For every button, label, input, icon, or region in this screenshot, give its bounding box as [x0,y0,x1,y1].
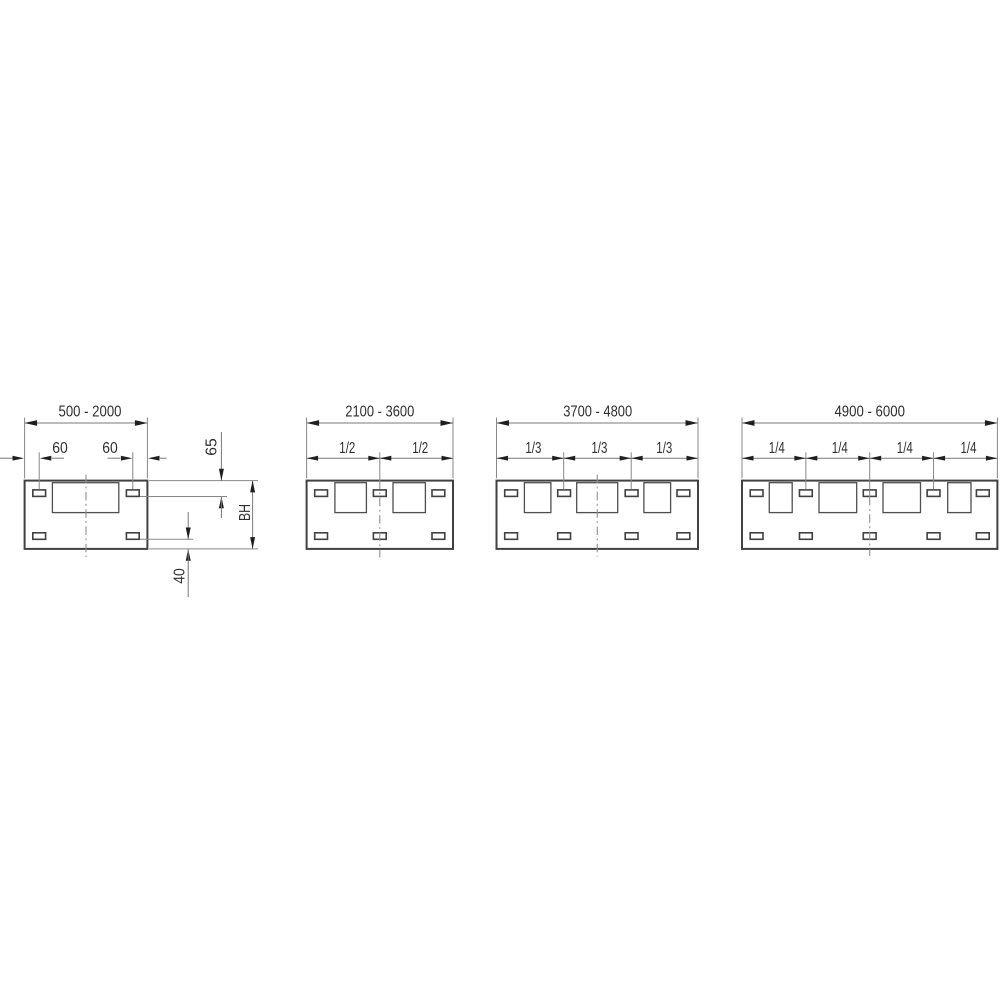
svg-text:1/4: 1/4 [832,440,848,457]
svg-text:500 - 2000: 500 - 2000 [59,404,122,421]
svg-text:65: 65 [204,438,221,456]
svg-text:60: 60 [102,440,118,457]
svg-text:1/2: 1/2 [412,440,428,457]
svg-text:60: 60 [52,440,68,457]
svg-text:BH: BH [237,504,254,521]
svg-text:1/3: 1/3 [525,440,541,457]
svg-text:2100 - 3600: 2100 - 3600 [345,404,414,421]
svg-text:3700 - 4800: 3700 - 4800 [563,404,632,421]
svg-text:4900 - 6000: 4900 - 6000 [834,404,905,421]
svg-text:1/3: 1/3 [656,440,672,457]
svg-text:40: 40 [172,568,189,584]
svg-text:1/2: 1/2 [339,440,355,457]
svg-text:1/3: 1/3 [591,440,607,457]
svg-text:1/4: 1/4 [961,440,977,457]
svg-text:1/4: 1/4 [897,440,913,457]
svg-text:1/4: 1/4 [769,440,785,457]
